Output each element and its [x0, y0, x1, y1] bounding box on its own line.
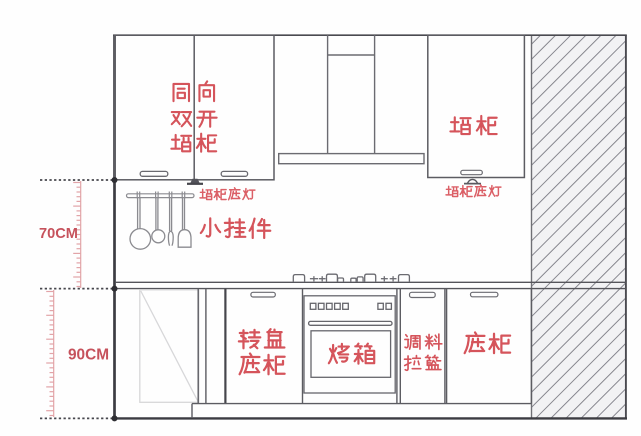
svg-text:70CM: 70CM: [39, 226, 78, 242]
svg-text:90CM: 90CM: [68, 346, 109, 363]
